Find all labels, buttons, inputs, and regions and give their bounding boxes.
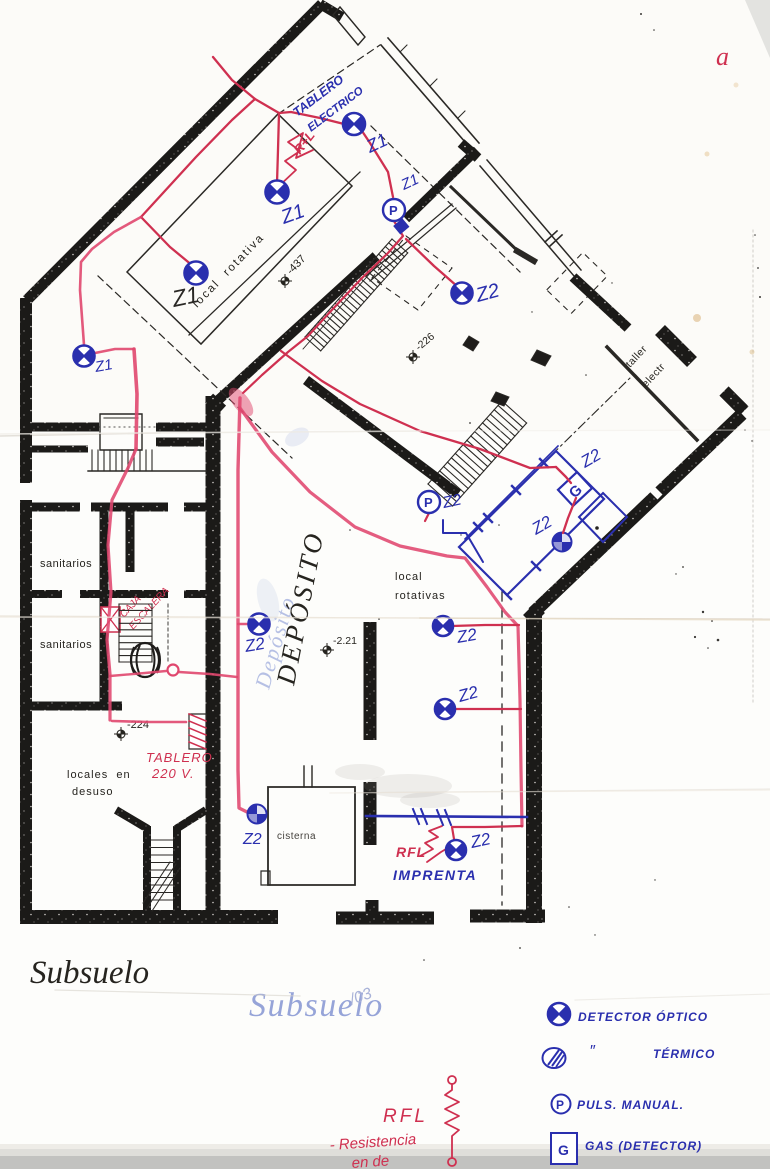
svg-text:Z2: Z2 bbox=[242, 634, 266, 656]
svg-text:DETECTOR ÓPTICO: DETECTOR ÓPTICO bbox=[578, 1009, 708, 1024]
svg-text:Z2: Z2 bbox=[242, 831, 262, 848]
svg-text:P: P bbox=[424, 495, 433, 510]
svg-text:Z1: Z1 bbox=[93, 356, 114, 376]
svg-text:sanitarios: sanitarios bbox=[40, 558, 92, 570]
svg-text:Subsuelo: Subsuelo bbox=[30, 955, 149, 991]
svg-text:G: G bbox=[558, 1142, 569, 1158]
svg-text:RFL: RFL bbox=[396, 844, 426, 860]
svg-text:P: P bbox=[389, 203, 398, 218]
svg-text:PULS. MANUAL.: PULS. MANUAL. bbox=[577, 1098, 684, 1112]
svg-text:RFL: RFL bbox=[383, 1106, 428, 1127]
svg-text:a: a bbox=[716, 42, 729, 71]
svg-text:local: local bbox=[395, 571, 423, 583]
svg-text:sanitarios: sanitarios bbox=[40, 639, 92, 651]
svg-text:Z2: Z2 bbox=[454, 625, 478, 647]
svg-text:P: P bbox=[556, 1098, 564, 1112]
svg-text:-2.21: -2.21 bbox=[333, 635, 357, 647]
svg-text:en de: en de bbox=[351, 1152, 390, 1169]
svg-text:220 V.: 220 V. bbox=[151, 766, 195, 781]
svg-text:GAS (DETECTOR): GAS (DETECTOR) bbox=[585, 1139, 702, 1153]
svg-text:TABLERO: TABLERO bbox=[146, 750, 213, 765]
svg-text:locales en: locales en bbox=[67, 769, 131, 781]
svg-text:cisterna: cisterna bbox=[277, 831, 316, 842]
svg-text:desuso: desuso bbox=[72, 786, 113, 798]
svg-text:TÉRMICO: TÉRMICO bbox=[653, 1046, 715, 1061]
svg-text:rotativas: rotativas bbox=[395, 590, 446, 602]
svg-text:″: ″ bbox=[590, 1043, 596, 1060]
svg-text:IMPRENTA: IMPRENTA bbox=[393, 867, 477, 883]
